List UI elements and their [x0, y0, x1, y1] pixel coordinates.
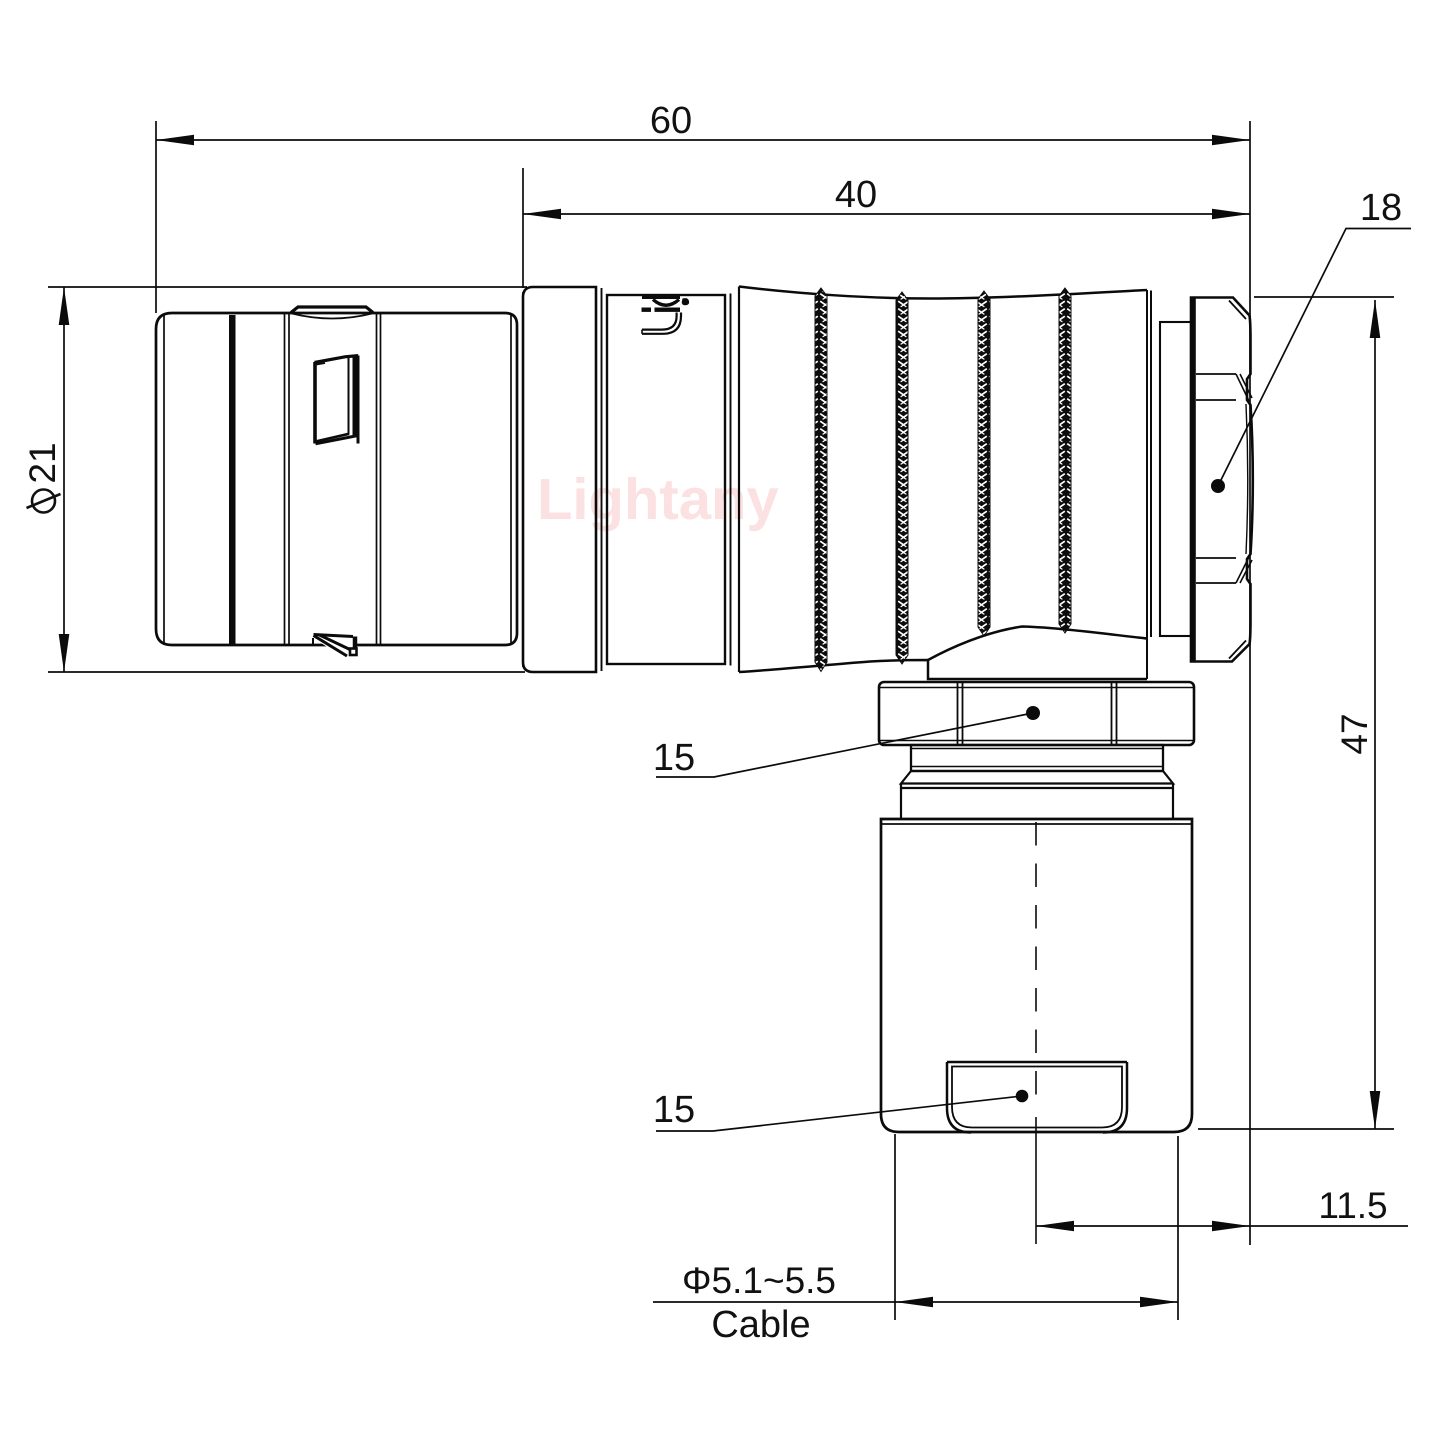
svg-text:Φ5.1~5.5: Φ5.1~5.5: [682, 1260, 836, 1301]
svg-text:47: 47: [1334, 713, 1375, 754]
svg-text:11.5: 11.5: [1318, 1185, 1387, 1226]
svg-text:21: 21: [22, 442, 63, 483]
svg-text:40: 40: [835, 174, 877, 216]
svg-text:Lightany: Lightany: [537, 467, 779, 532]
svg-text:18: 18: [1360, 187, 1402, 229]
svg-text:60: 60: [650, 100, 692, 142]
svg-text:Cable: Cable: [711, 1304, 810, 1346]
svg-text:15: 15: [653, 1089, 695, 1131]
svg-text:15: 15: [653, 737, 695, 779]
